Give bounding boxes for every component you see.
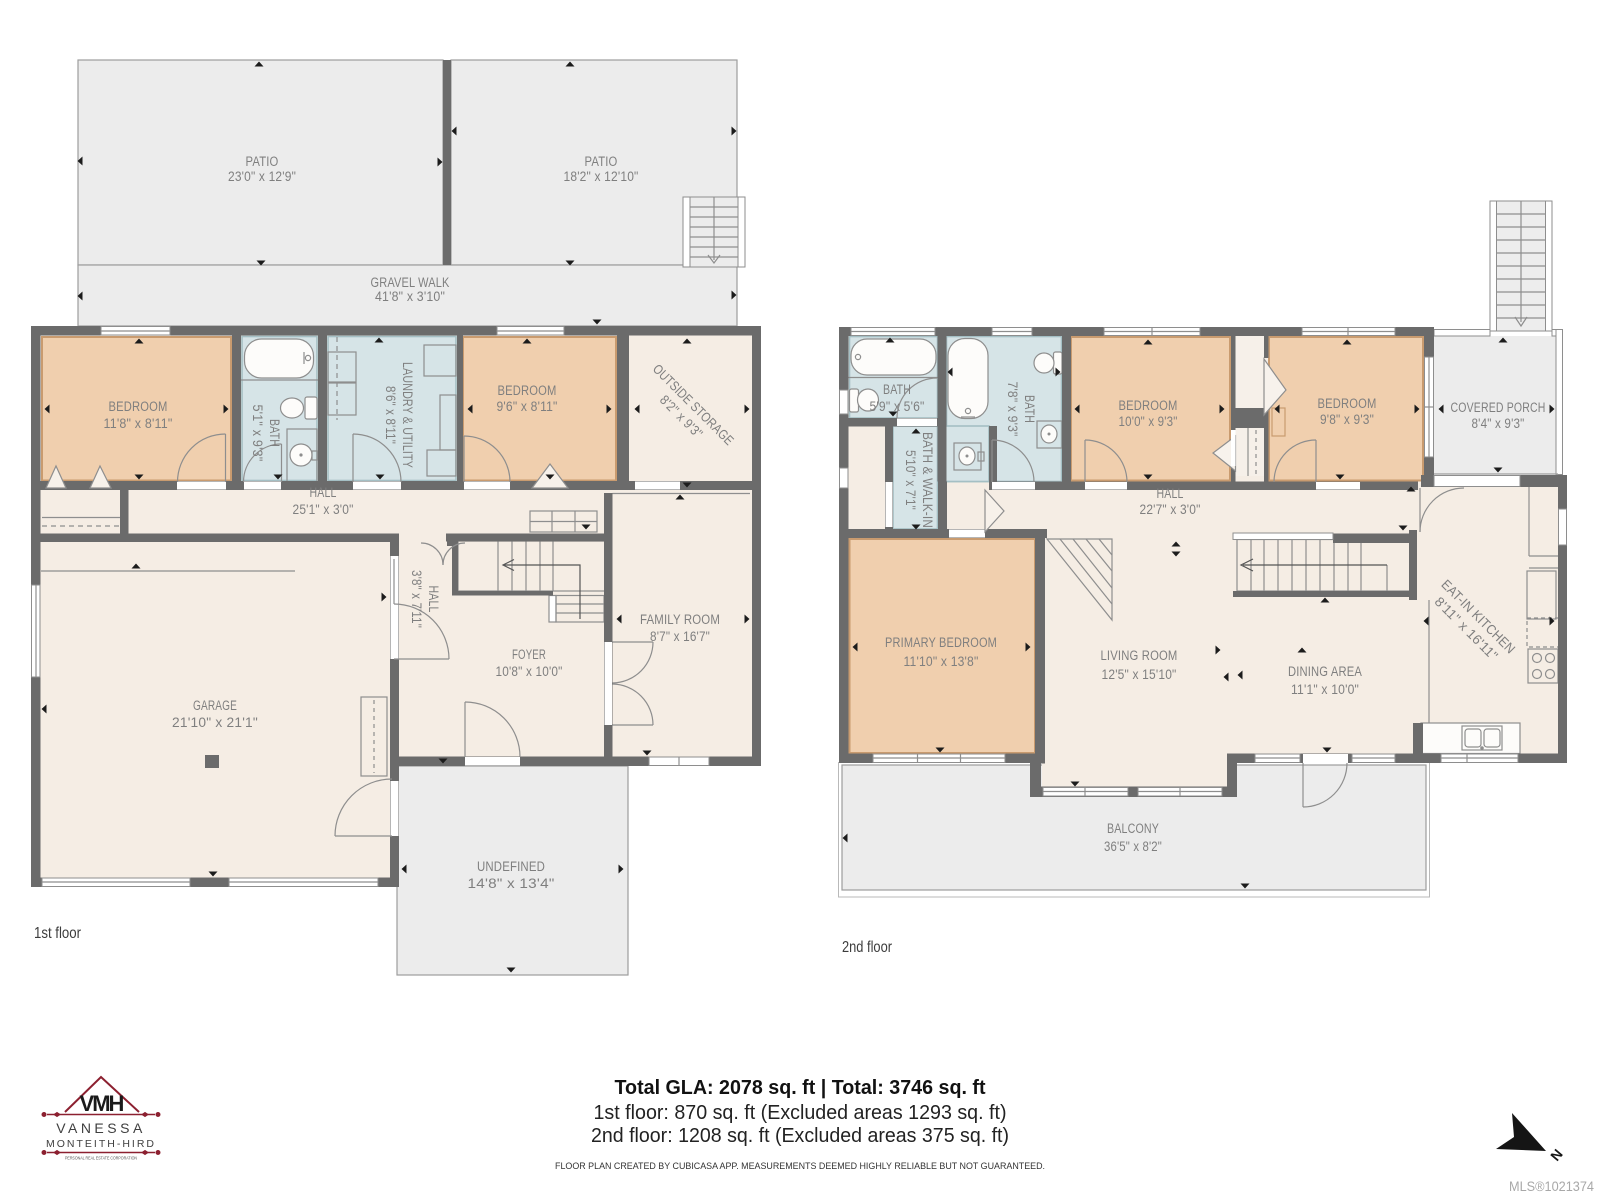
- svg-text:BATH: BATH: [267, 419, 282, 447]
- svg-text:HALL: HALL: [310, 485, 337, 500]
- svg-text:5'1" x 9'3": 5'1" x 9'3": [250, 405, 265, 462]
- svg-text:8'6" x 8'11": 8'6" x 8'11": [383, 386, 398, 444]
- svg-text:8'4" x 9'3": 8'4" x 9'3": [1472, 416, 1525, 431]
- svg-text:MONTEITH-HIRD: MONTEITH-HIRD: [46, 1138, 156, 1150]
- svg-text:5'10" x 7'1": 5'10" x 7'1": [903, 450, 918, 510]
- svg-text:N: N: [1547, 1146, 1566, 1164]
- svg-text:9'6" x 8'11": 9'6" x 8'11": [497, 399, 558, 414]
- svg-text:BATH & WALK-IN: BATH & WALK-IN: [920, 432, 935, 528]
- svg-text:11'1" x 10'0": 11'1" x 10'0": [1291, 682, 1359, 697]
- svg-text:FOYER: FOYER: [512, 647, 546, 662]
- svg-text:9'8" x 9'3": 9'8" x 9'3": [1320, 412, 1374, 427]
- svg-text:PATIO: PATIO: [246, 154, 279, 169]
- svg-text:BEDROOM: BEDROOM: [498, 383, 557, 398]
- svg-text:PATIO: PATIO: [585, 154, 618, 169]
- svg-text:LAUNDRY & UTILITY: LAUNDRY & UTILITY: [400, 362, 415, 468]
- svg-text:21'10" x 21'1": 21'10" x 21'1": [172, 715, 258, 730]
- svg-text:LIVING ROOM: LIVING ROOM: [1101, 648, 1178, 663]
- svg-text:BATH: BATH: [883, 382, 911, 397]
- svg-text:PRIMARY BEDROOM: PRIMARY BEDROOM: [885, 635, 997, 650]
- svg-text:Total GLA: 2078 sq. ft | Total: Total GLA: 2078 sq. ft | Total: 3746 sq.…: [615, 1077, 986, 1099]
- svg-text:BEDROOM: BEDROOM: [1318, 396, 1377, 411]
- svg-text:BEDROOM: BEDROOM: [109, 399, 168, 414]
- svg-text:PERSONAL REAL ESTATE CORPORATI: PERSONAL REAL ESTATE CORPORATION: [65, 1156, 137, 1161]
- svg-text:10'8" x 10'0": 10'8" x 10'0": [496, 664, 563, 679]
- svg-text:FAMILY ROOM: FAMILY ROOM: [640, 612, 720, 627]
- svg-text:GARAGE: GARAGE: [193, 698, 237, 713]
- svg-text:HALL: HALL: [426, 586, 441, 613]
- svg-text:FLOOR PLAN CREATED BY CUBICASA: FLOOR PLAN CREATED BY CUBICASA APP. MEAS…: [555, 1161, 1045, 1172]
- svg-text:5'9" x 5'6": 5'9" x 5'6": [870, 399, 925, 414]
- svg-text:12'5" x 15'10": 12'5" x 15'10": [1102, 667, 1177, 682]
- svg-text:UNDEFINED: UNDEFINED: [477, 859, 545, 874]
- svg-text:VMH: VMH: [80, 1091, 124, 1116]
- svg-text:23'0" x 12'9": 23'0" x 12'9": [228, 169, 296, 184]
- svg-text:8'7" x 16'7": 8'7" x 16'7": [650, 629, 710, 644]
- svg-text:BALCONY: BALCONY: [1107, 821, 1159, 836]
- svg-text:1st floor: 1st floor: [34, 925, 82, 942]
- svg-text:22'7" x 3'0": 22'7" x 3'0": [1140, 502, 1201, 517]
- svg-text:2nd floor: 1208 sq. ft (Exclud: 2nd floor: 1208 sq. ft (Excluded areas 3…: [591, 1125, 1009, 1147]
- svg-text:GRAVEL WALK: GRAVEL WALK: [371, 275, 450, 290]
- svg-text:HALL: HALL: [1157, 486, 1184, 501]
- svg-text:1st floor: 870 sq. ft (Exclude: 1st floor: 870 sq. ft (Excluded areas 12…: [594, 1102, 1007, 1124]
- svg-text:18'2" x 12'10": 18'2" x 12'10": [564, 169, 639, 184]
- svg-text:7'8" x 9'3": 7'8" x 9'3": [1005, 382, 1020, 437]
- svg-text:41'8" x 3'10": 41'8" x 3'10": [375, 289, 445, 304]
- svg-text:BATH: BATH: [1022, 395, 1037, 423]
- svg-text:25'1" x 3'0": 25'1" x 3'0": [293, 502, 354, 517]
- svg-text:COVERED PORCH: COVERED PORCH: [1451, 400, 1546, 415]
- svg-text:11'8" x 8'11": 11'8" x 8'11": [104, 416, 173, 431]
- svg-text:2nd floor: 2nd floor: [842, 939, 893, 956]
- svg-text:VANESSA: VANESSA: [56, 1120, 146, 1136]
- svg-text:36'5" x 8'2": 36'5" x 8'2": [1104, 839, 1162, 854]
- svg-text:DINING AREA: DINING AREA: [1288, 664, 1362, 679]
- svg-text:MLS®1021374: MLS®1021374: [1509, 1178, 1594, 1194]
- svg-text:11'10" x 13'8": 11'10" x 13'8": [904, 654, 979, 669]
- svg-text:3'8" x 7'11": 3'8" x 7'11": [409, 570, 424, 628]
- svg-text:14'8" x 13'4": 14'8" x 13'4": [468, 876, 555, 891]
- svg-text:BEDROOM: BEDROOM: [1119, 398, 1178, 413]
- svg-text:10'0" x 9'3": 10'0" x 9'3": [1119, 414, 1178, 429]
